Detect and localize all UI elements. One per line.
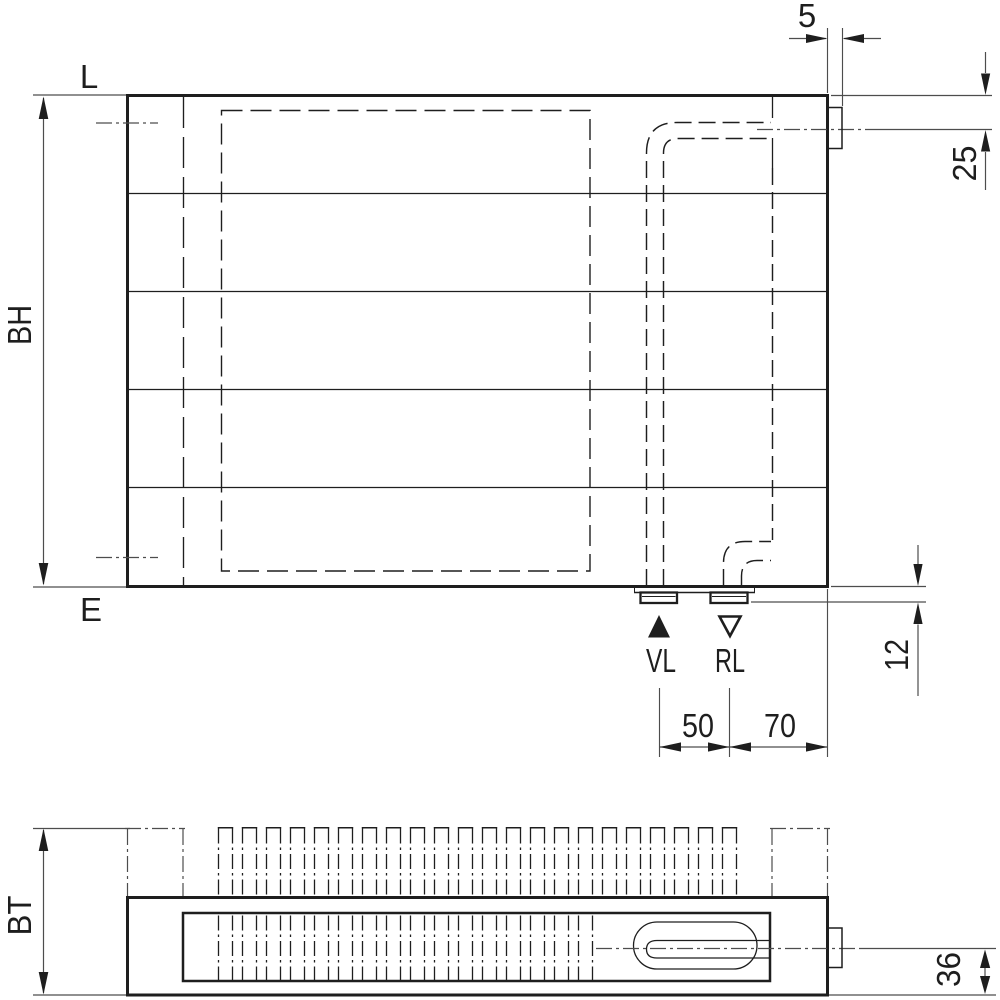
panel-separation-lines [129, 194, 826, 488]
panel-water-channels [219, 916, 593, 981]
plan-panel-outline [183, 913, 770, 981]
water-channel-detail [634, 922, 771, 969]
dim-70-label: 70 [764, 707, 796, 744]
vent-plug-tab [828, 108, 843, 149]
front-view [96, 96, 866, 638]
fin-extent-phantom-right [770, 829, 830, 897]
plan-connection-tab [828, 928, 843, 968]
dim-bt-label: BT [1, 896, 38, 936]
dim-25: 25 [831, 52, 992, 190]
label-rl: RL [715, 642, 745, 679]
supply-stub [641, 593, 678, 604]
convector-fins [218, 828, 738, 897]
hidden-panel-outline [222, 111, 591, 572]
dim-50-label: 50 [682, 707, 714, 744]
dim-bh-label: BH [1, 305, 38, 345]
return-flow-icon [720, 617, 741, 637]
label-e: E [80, 591, 102, 628]
dim-5: 5 [789, 0, 881, 106]
center-marks [96, 123, 866, 558]
dim-bh: BH [1, 95, 126, 587]
label-l: L [80, 58, 98, 95]
front-view-dimensions: BH L E 5 25 12 [1, 0, 992, 757]
dim-12: 12 [751, 545, 926, 696]
technical-drawing: BH L E 5 25 12 [0, 0, 1000, 1000]
label-vl: VL [646, 642, 676, 679]
return-stub [711, 593, 748, 604]
return-pipe-hidden [724, 542, 772, 587]
plan-view [125, 828, 996, 995]
supply-flow-icon [648, 615, 670, 638]
dim-25-label: 25 [946, 146, 983, 182]
supply-pipe-hidden [647, 123, 772, 587]
dim-5-label: 5 [798, 0, 816, 34]
dim-bt: BT [1, 829, 130, 996]
dim-12-label: 12 [878, 639, 915, 671]
dim-36: 36 [829, 950, 996, 996]
radiator-body-outline [128, 96, 828, 587]
dim-36-label: 36 [930, 952, 967, 987]
fin-extent-phantom-left [125, 829, 185, 897]
